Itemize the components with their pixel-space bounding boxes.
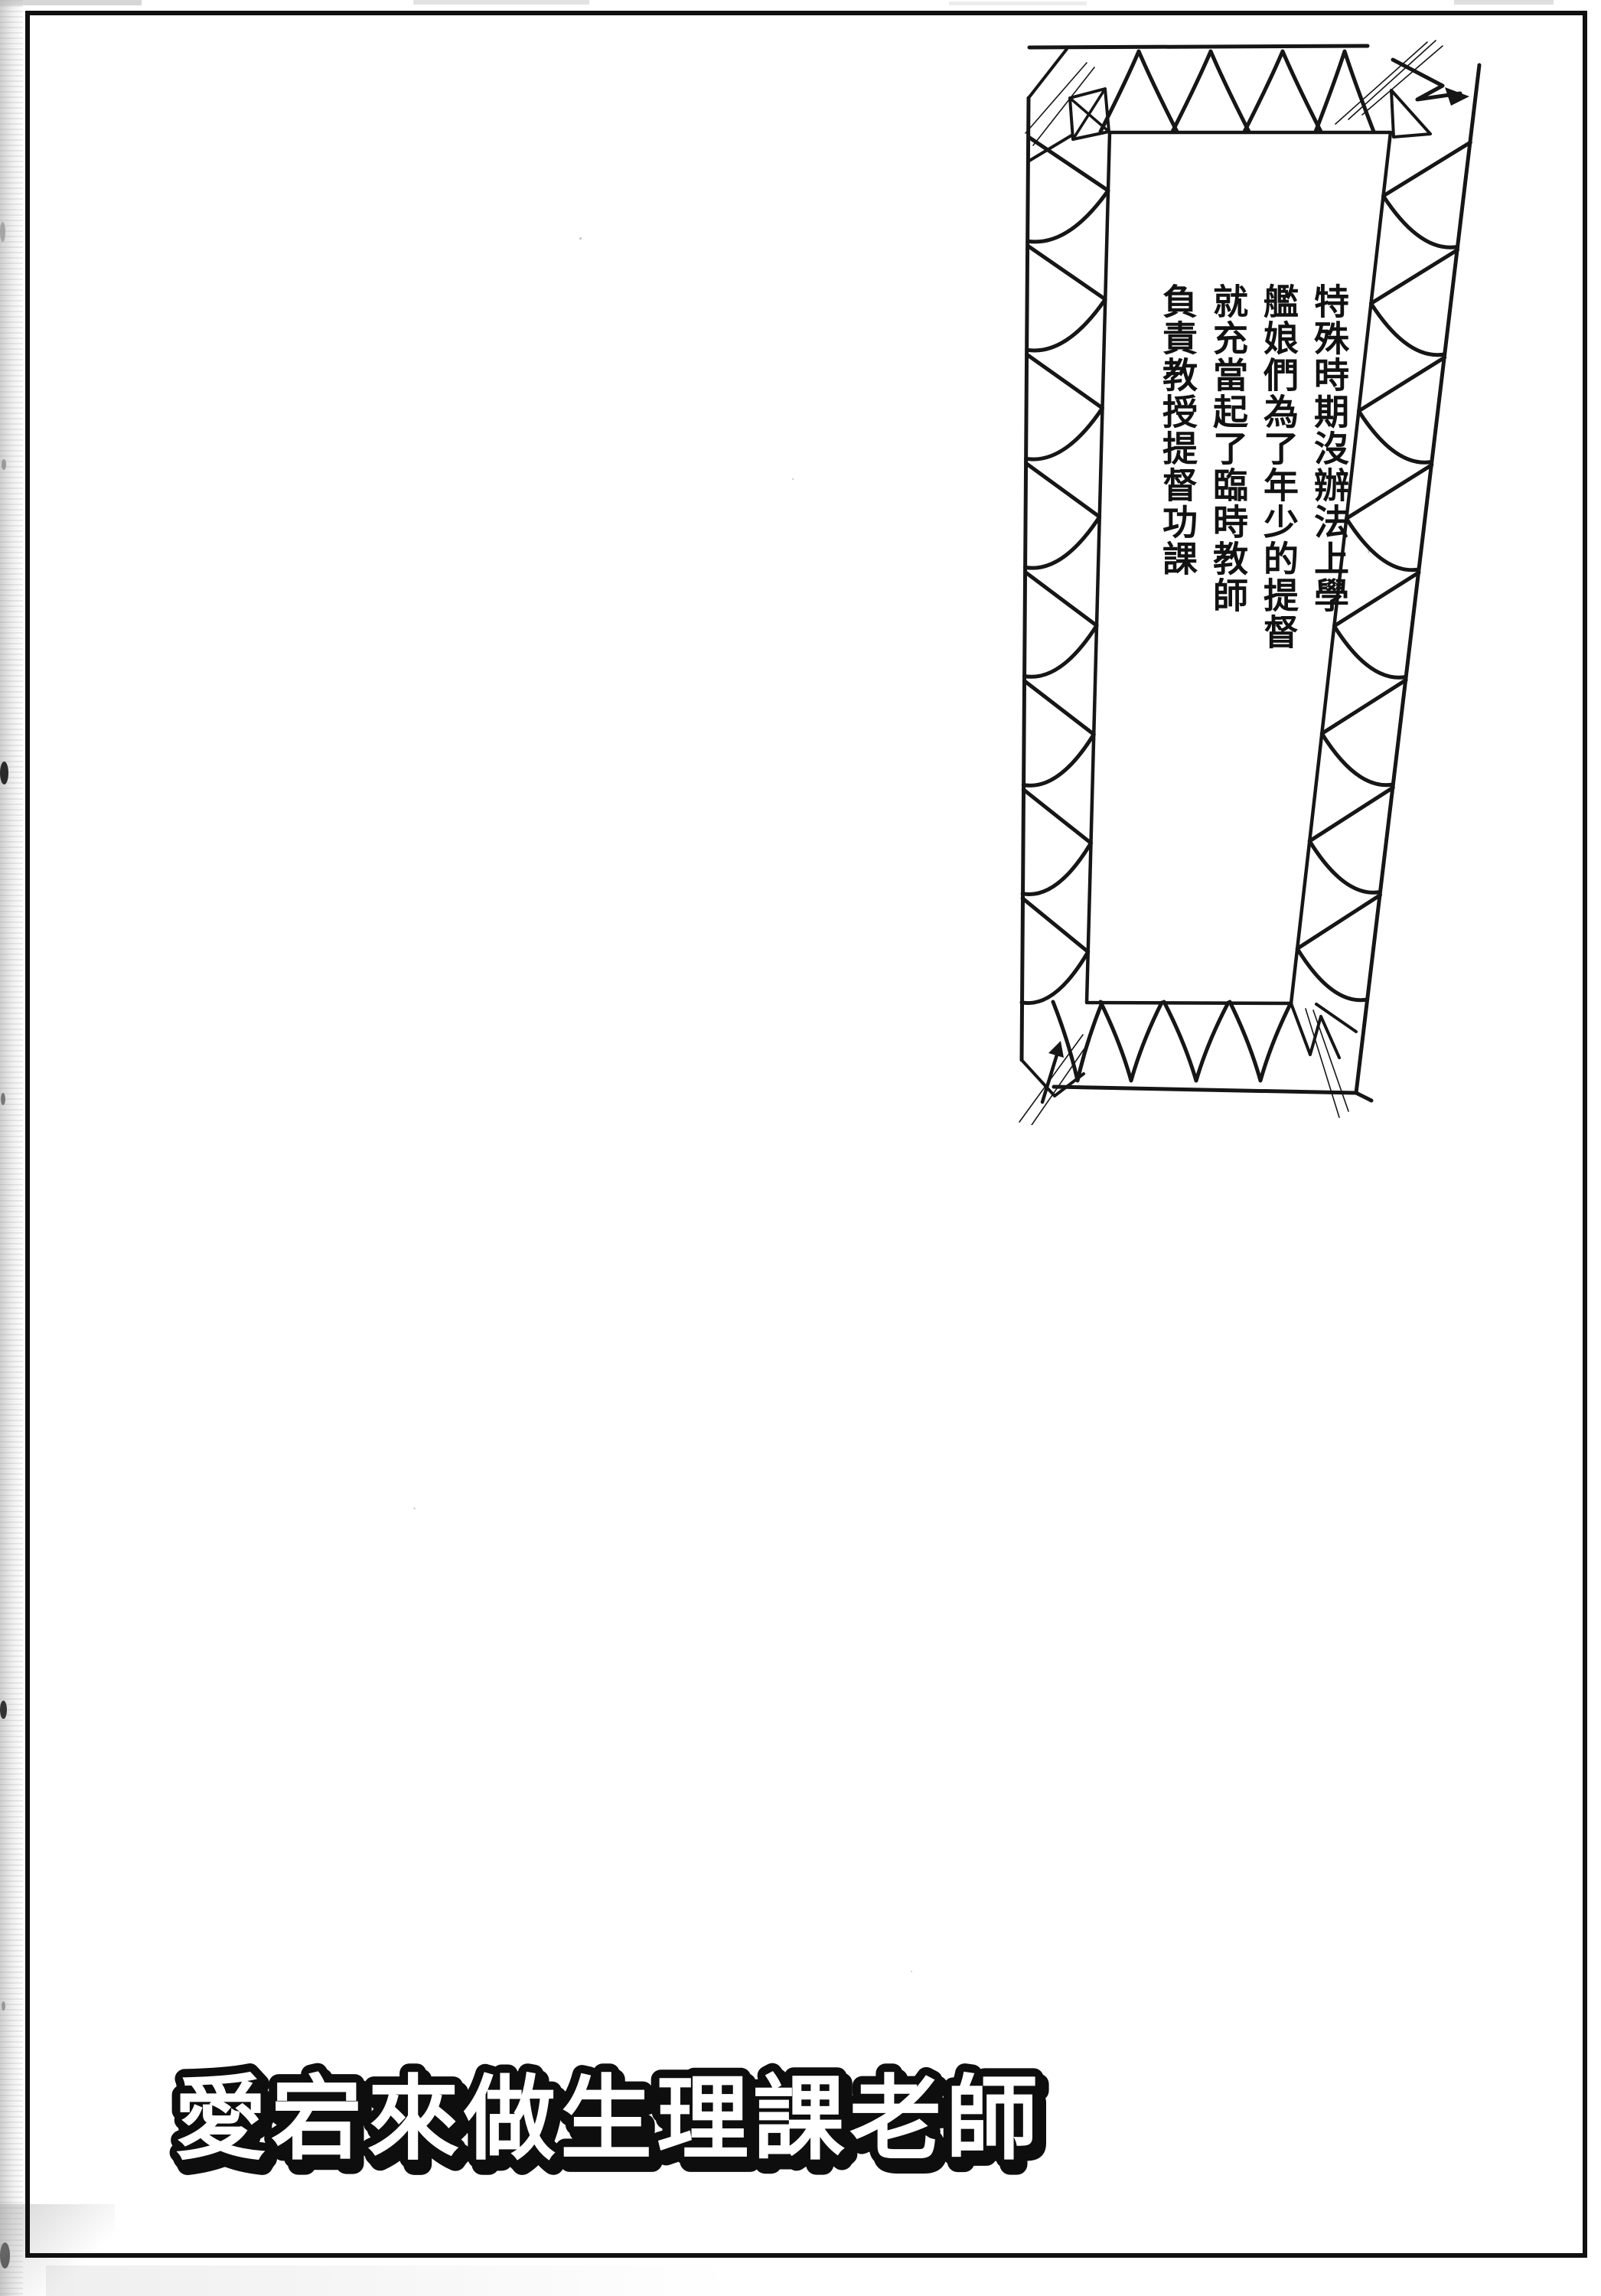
border-stroke [1022,790,1091,895]
border-stroke [1164,1002,1228,1081]
scan-smudge [1454,0,1554,5]
border-stroke [1024,572,1097,677]
border-stroke [1054,1087,1356,1093]
border-stroke [1291,1003,1339,1058]
scan-artifact [0,762,8,784]
border-stroke [1048,1041,1064,1058]
border-stroke [1027,246,1105,351]
border-stroke [1356,1093,1371,1101]
narration-line: 特殊時期沒辦法上學 [1304,283,1355,712]
scan-artifact [2,2001,5,2011]
border-stroke [1100,1002,1162,1081]
scan-artifact [0,1701,7,1719]
narration-box: 特殊時期沒辦法上學 艦娘們為了年少的提督 就充當起了臨時教師 負責教授提督功課 [1153,283,1355,712]
scan-artifact [1,1093,5,1105]
border-stroke [1022,899,1088,1003]
narration-line: 艦娘們為了年少的提督 [1254,283,1304,712]
border-stroke [1335,42,1427,124]
border-stroke [1316,51,1374,132]
chapter-title-text: 愛宕來做生理課老師 [174,2068,1042,2170]
border-stroke [1025,63,1087,133]
border-stroke [1029,49,1067,98]
scan-smudge [413,0,589,5]
narration-line: 就充當起了臨時教師 [1203,283,1254,712]
border-stroke [1356,65,1479,1093]
border-stroke [1029,135,1071,161]
border-stroke [1384,142,1471,247]
scan-smudge [46,2265,735,2296]
scan-artifact [2,459,6,470]
border-stroke [1026,354,1103,459]
manga-page: 特殊時期沒辦法上學 艦娘們為了年少的提督 就充當起了臨時教師 負責教授提督功課 … [0,0,1601,2296]
border-stroke [1244,51,1321,132]
border-stroke [1023,681,1094,786]
chapter-title: 愛宕來做生理課老師 愛宕來做生理課老師 [130,2036,1125,2197]
border-stroke [1230,1002,1291,1081]
border-stroke [1445,87,1469,106]
border-stroke [1025,463,1100,568]
scan-artifact [0,222,5,242]
border-stroke [1100,51,1177,132]
narration-line: 負責教授提督功課 [1153,283,1203,712]
border-stroke [1313,1010,1348,1111]
border-stroke [1029,46,1368,47]
border-stroke [1306,1009,1339,1117]
scan-edge-texture [0,0,23,2296]
scan-smudge [949,2,1087,5]
scan-smudge [0,0,142,5]
border-stroke [1172,51,1249,132]
